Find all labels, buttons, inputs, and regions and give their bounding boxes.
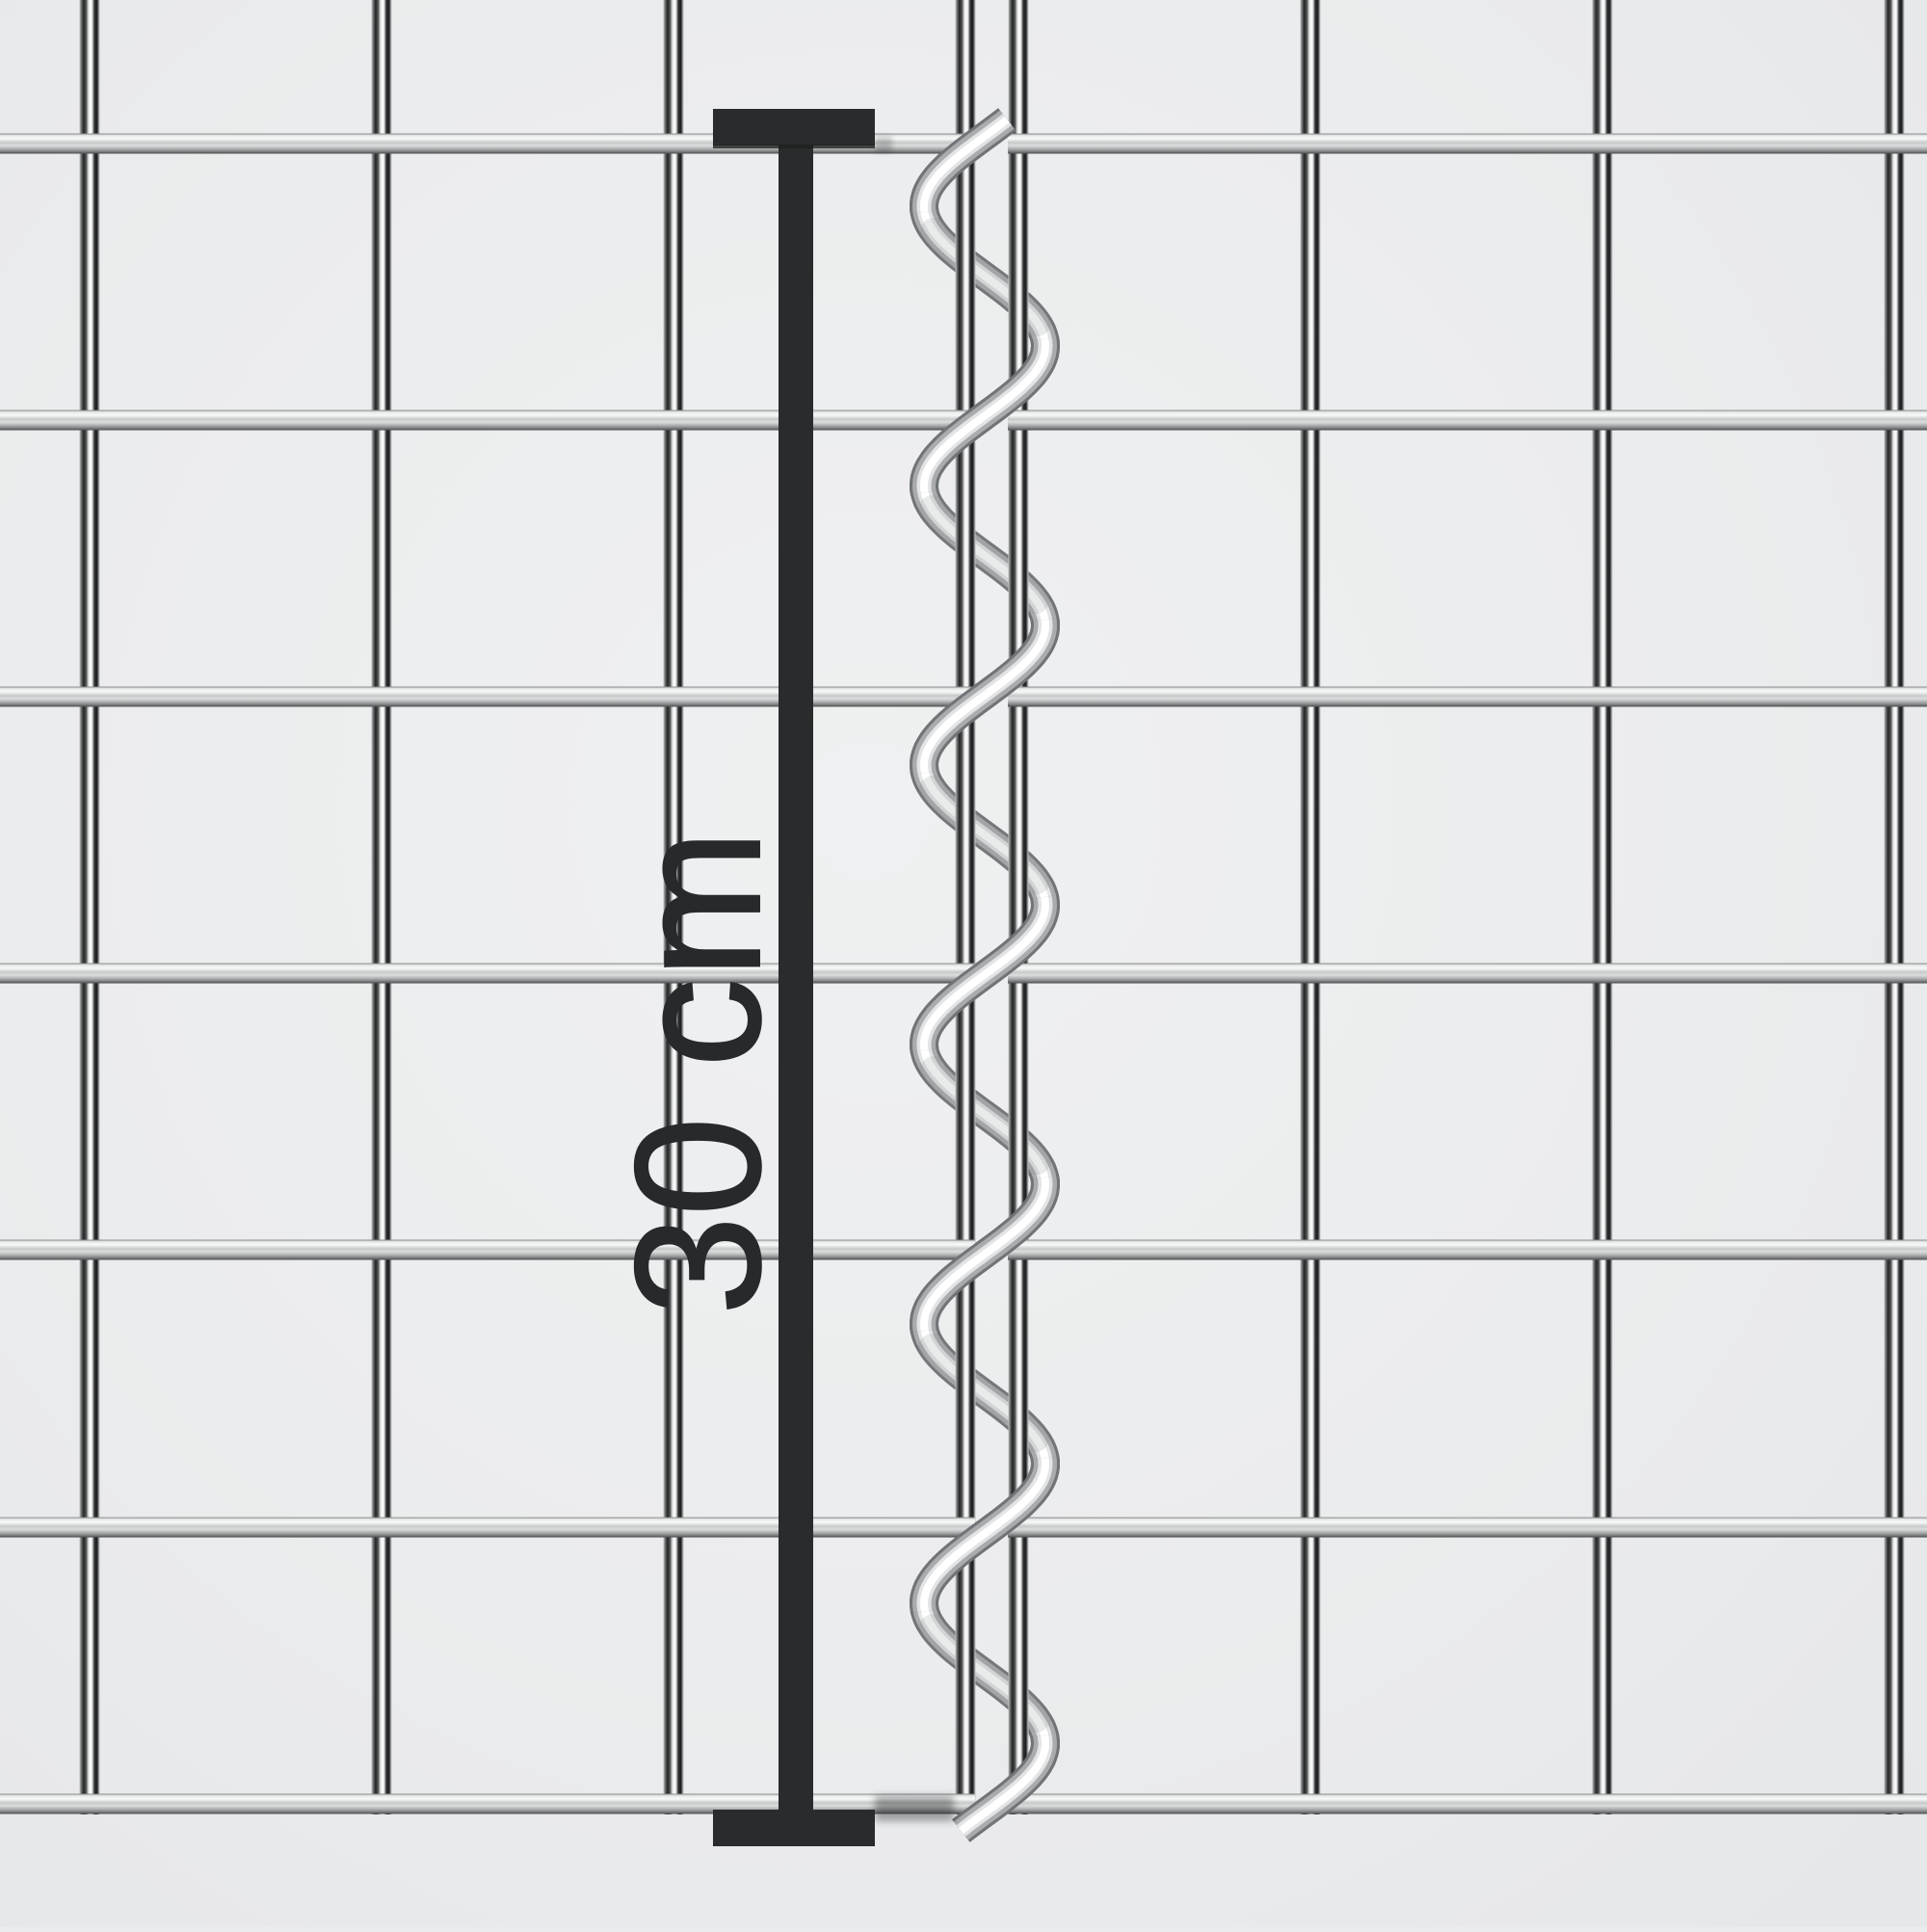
svg-text:30 cm: 30 cm <box>599 830 798 1315</box>
